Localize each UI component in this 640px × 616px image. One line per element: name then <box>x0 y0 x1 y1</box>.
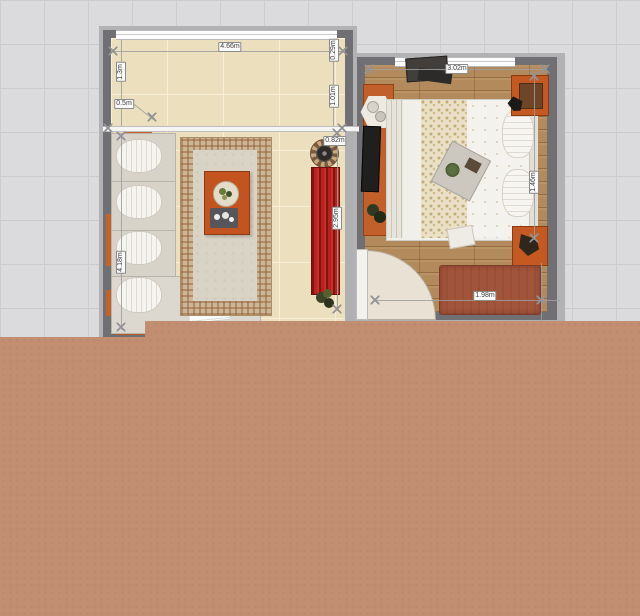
dim-line-br-bottom <box>373 300 560 301</box>
dim-tick <box>339 47 348 56</box>
bed-pillow <box>502 110 534 158</box>
dim-tick <box>537 296 546 305</box>
dim-tick <box>109 47 118 56</box>
dim-label-br-right: 1.46m <box>529 170 539 193</box>
dim-tick <box>148 113 157 122</box>
dim-label-lr-top: 4.66m <box>218 42 241 52</box>
dim-bar-lr <box>103 126 359 132</box>
plate <box>375 111 386 122</box>
fruit <box>222 195 227 200</box>
plant-foliage <box>374 211 386 223</box>
bed-foot-fold <box>387 100 403 238</box>
fan-center <box>316 145 333 162</box>
door-leaf[interactable] <box>356 249 368 320</box>
dim-label-lr-inner: 0.82m <box>323 136 346 146</box>
foot-bench[interactable] <box>439 265 541 315</box>
dim-tick <box>104 124 113 133</box>
tray-item <box>229 217 234 222</box>
nightstand-bottom-right[interactable] <box>512 226 548 266</box>
tray-item <box>222 212 229 219</box>
dim-label-lr-right-upper: 0.29m <box>329 38 339 61</box>
tray-box <box>464 157 482 173</box>
double-bed[interactable] <box>386 99 538 241</box>
dim-tick <box>117 132 126 141</box>
dim-label-br-bottom: 1.98m <box>473 291 496 301</box>
dim-tick <box>117 323 126 332</box>
living-room-window[interactable] <box>116 30 337 40</box>
dim-tick <box>333 305 342 314</box>
throw-pillow[interactable] <box>116 277 162 313</box>
throw-pillow[interactable] <box>116 185 162 219</box>
nightstand-cushion <box>519 83 543 109</box>
dim-line-br-corner <box>541 263 542 321</box>
dim-tick <box>541 65 550 74</box>
fruit-plate <box>213 181 239 207</box>
tv-console[interactable] <box>361 126 381 193</box>
plant-foliage <box>375 200 385 210</box>
dim-label-lr-offset: 0.5m <box>114 99 134 109</box>
dim-tick <box>530 234 539 243</box>
terrain-main <box>0 337 640 616</box>
dim-label-lr-cabinet: 2.95m <box>332 206 342 229</box>
dim-line-lr-left <box>121 40 122 126</box>
throw-pillow[interactable] <box>116 139 162 173</box>
tray-plant <box>443 160 462 179</box>
fruit <box>219 188 226 195</box>
living-room-right-wall-lower <box>345 131 353 332</box>
dim-label-lr-left-full: 4.18m <box>116 250 126 273</box>
dim-label-br-top: 3.02m <box>445 64 468 74</box>
dim-label-lr-right-lower: 1.01m <box>329 84 339 107</box>
terrain-upper <box>145 321 640 338</box>
red-tv-cabinet[interactable] <box>311 167 340 295</box>
dim-tick <box>530 72 539 81</box>
coffee-table[interactable] <box>204 171 250 235</box>
dim-tick <box>371 296 380 305</box>
dim-label-lr-left-upper: 1.3m <box>116 62 126 82</box>
plant-foliage <box>323 289 332 298</box>
serving-tray <box>210 208 238 228</box>
floorplan-canvas[interactable]: 4.66m 1.3m 0.5m 0.29m 1.01m 0.82m 2.95m … <box>0 0 640 616</box>
dim-line-br-right <box>534 74 535 240</box>
dim-line-lr-left-full <box>121 133 122 330</box>
dim-tick <box>365 65 374 74</box>
tray-item <box>214 214 220 220</box>
